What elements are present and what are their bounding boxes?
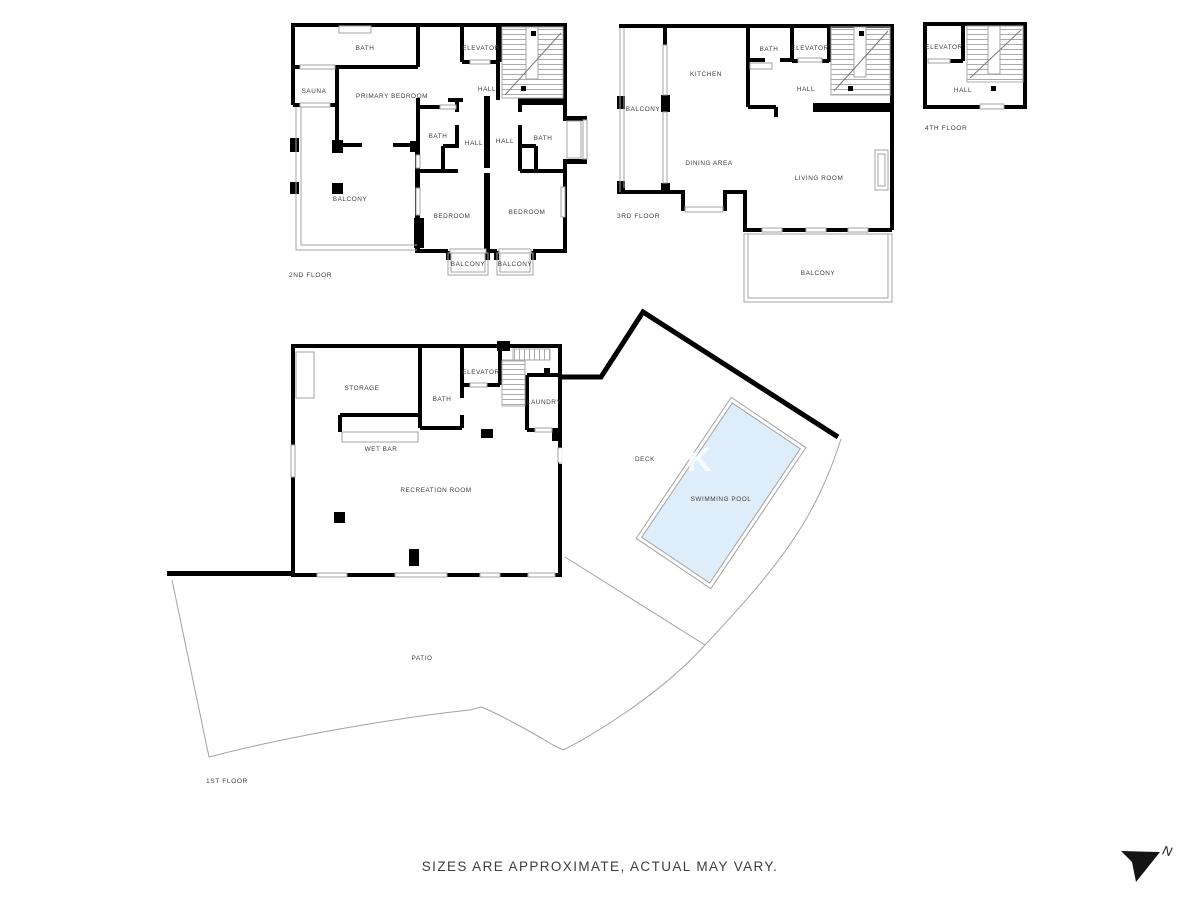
stairs-4th <box>967 26 1023 91</box>
room-label-balcony: BALCONY <box>333 196 368 203</box>
room-label-elevator: ELEVATOR <box>462 369 499 376</box>
north-compass: N <box>1121 842 1174 882</box>
room-label-sauna: SAUNA <box>302 88 327 95</box>
room-label-bath: BATH <box>760 46 779 53</box>
floor-label-2nd: 2ND FLOOR <box>289 272 332 279</box>
floor-label-4th: 4TH FLOOR <box>925 125 967 132</box>
swimming-pool <box>636 397 806 588</box>
room-label-bath: BATH <box>534 135 553 142</box>
room-label-wet-bar: WET BAR <box>365 446 398 453</box>
disclaimer-text: SIZES ARE APPROXIMATE, ACTUAL MAY VARY. <box>422 859 778 874</box>
room-label-bath: BATH <box>429 133 448 140</box>
floor-plan-drawing: BATH SAUNA PRIMARY BEDROOM ELEVATOR HALL… <box>0 0 1200 900</box>
floor-plan-4th: ELEVATOR HALL 4TH FLOOR <box>923 22 1027 132</box>
fixtures-1st <box>291 349 562 577</box>
floor-plan-sheet: BATH SAUNA PRIMARY BEDROOM ELEVATOR HALL… <box>0 0 1200 900</box>
room-label-living-room: LIVING ROOM <box>795 175 844 182</box>
fixtures-4th <box>928 26 1023 109</box>
floor-plan-1st: K STORAGE BATH ELEVATOR LAUNDRY WET BAR … <box>167 312 841 785</box>
floor-label-1st: 1ST FLOOR <box>206 778 248 785</box>
room-label-elevator: ELEVATOR <box>791 45 828 52</box>
room-label-dining-area: DINING AREA <box>685 160 732 167</box>
north-label: N <box>1161 842 1174 859</box>
room-label-hall: HALL <box>465 140 483 147</box>
room-label-hall: HALL <box>797 86 815 93</box>
room-label-balcony: BALCONY <box>451 261 486 268</box>
room-label-balcony: BALCONY <box>498 261 533 268</box>
room-label-elevator: ELEVATOR <box>925 44 962 51</box>
room-label-storage: STORAGE <box>345 385 380 392</box>
room-labels-4th: ELEVATOR HALL <box>925 44 972 94</box>
room-label-elevator: ELEVATOR <box>462 45 499 52</box>
room-label-patio: PATIO <box>412 655 433 662</box>
room-label-balcony: BALCONY <box>801 270 836 277</box>
room-label-hall: HALL <box>496 138 514 145</box>
room-label-laundry: LAUNDRY <box>527 399 561 406</box>
floor-plan-2nd: BATH SAUNA PRIMARY BEDROOM ELEVATOR HALL… <box>289 23 587 279</box>
north-arrow-icon <box>1121 851 1160 882</box>
room-label-deck: DECK <box>635 456 655 463</box>
room-label-bath: BATH <box>433 396 452 403</box>
room-label-hall: HALL <box>478 86 496 93</box>
room-label-recreation-room: RECREATION ROOM <box>400 487 471 494</box>
room-label-kitchen: KITCHEN <box>690 71 722 78</box>
room-label-primary-bedroom: PRIMARY BEDROOM <box>356 93 428 100</box>
room-label-swimming-pool: SWIMMING POOL <box>691 496 752 503</box>
floor-plan-3rd: BALCONY KITCHEN BATH ELEVATOR HALL DININ… <box>617 24 892 302</box>
stairs-2nd <box>502 27 563 98</box>
room-label-balcony: BALCONY <box>626 106 661 113</box>
room-label-bath: BATH <box>356 45 375 52</box>
fixtures-3rd <box>620 27 892 302</box>
room-labels-3rd: BALCONY KITCHEN BATH ELEVATOR HALL DININ… <box>626 45 844 277</box>
stairs-3rd <box>831 27 890 95</box>
room-label-bedroom: BEDROOM <box>509 209 546 216</box>
watermark-letter: K <box>687 441 712 479</box>
room-label-hall: HALL <box>954 87 972 94</box>
floor-label-3rd: 3RD FLOOR <box>617 213 660 220</box>
room-label-bedroom: BEDROOM <box>434 213 471 220</box>
